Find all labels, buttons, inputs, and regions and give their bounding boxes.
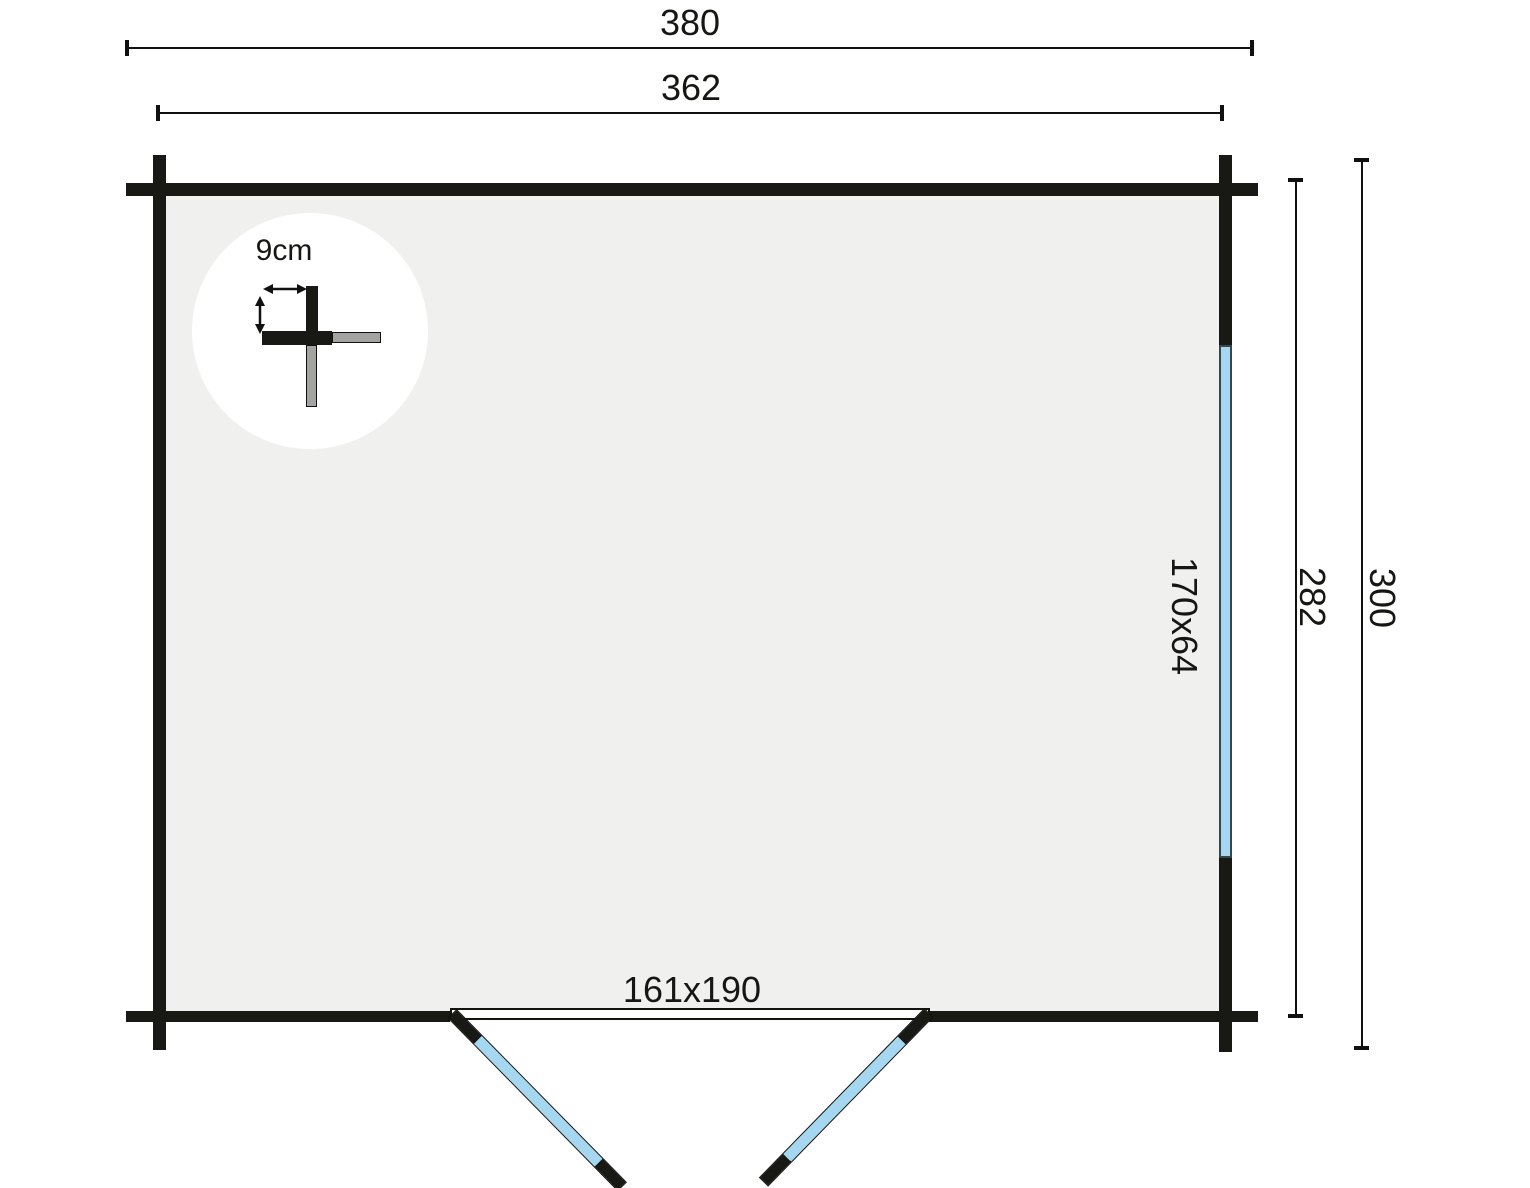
dim-cap-overall-width-right — [1250, 40, 1254, 56]
dim-cap-overall-depth-top — [1354, 158, 1369, 162]
dim-cap-inner-width-left — [156, 105, 160, 121]
door-size-label: 161x190 — [623, 972, 761, 1008]
dim-line-overall-width — [127, 47, 1254, 49]
wall-right-upper — [1219, 155, 1232, 345]
dim-cap-overall-width-left — [125, 40, 129, 56]
wall-top — [126, 183, 1258, 196]
wall-left — [153, 155, 166, 1050]
wall-right-lower — [1219, 858, 1232, 1052]
wall-bottom-right — [929, 1011, 1258, 1022]
window — [1219, 345, 1232, 858]
height-arrow-icon — [255, 296, 265, 334]
dim-cap-inner-width-right — [1220, 105, 1224, 121]
floor-plan-canvas: 380 362 9cm 161x190 170x64 — [0, 0, 1530, 1188]
door-leaf-left — [447, 1009, 627, 1188]
dim-label-overall-depth: 300 — [1364, 568, 1400, 628]
dim-cap-inner-depth-bottom — [1288, 1014, 1303, 1018]
dim-cap-inner-depth-top — [1288, 178, 1303, 182]
window-size-label: 170x64 — [1166, 557, 1202, 675]
width-arrow-icon — [263, 284, 307, 294]
wall-thickness-label: 9cm — [256, 236, 313, 266]
wall-bottom-left — [126, 1011, 450, 1022]
door-leaf-right — [759, 1008, 934, 1187]
dim-label-inner-depth: 282 — [1294, 567, 1330, 627]
dim-label-overall-width: 380 — [660, 5, 720, 41]
dim-label-inner-width: 362 — [661, 70, 721, 106]
dim-cap-overall-depth-bottom — [1354, 1046, 1369, 1050]
dim-line-inner-width — [158, 112, 1224, 114]
